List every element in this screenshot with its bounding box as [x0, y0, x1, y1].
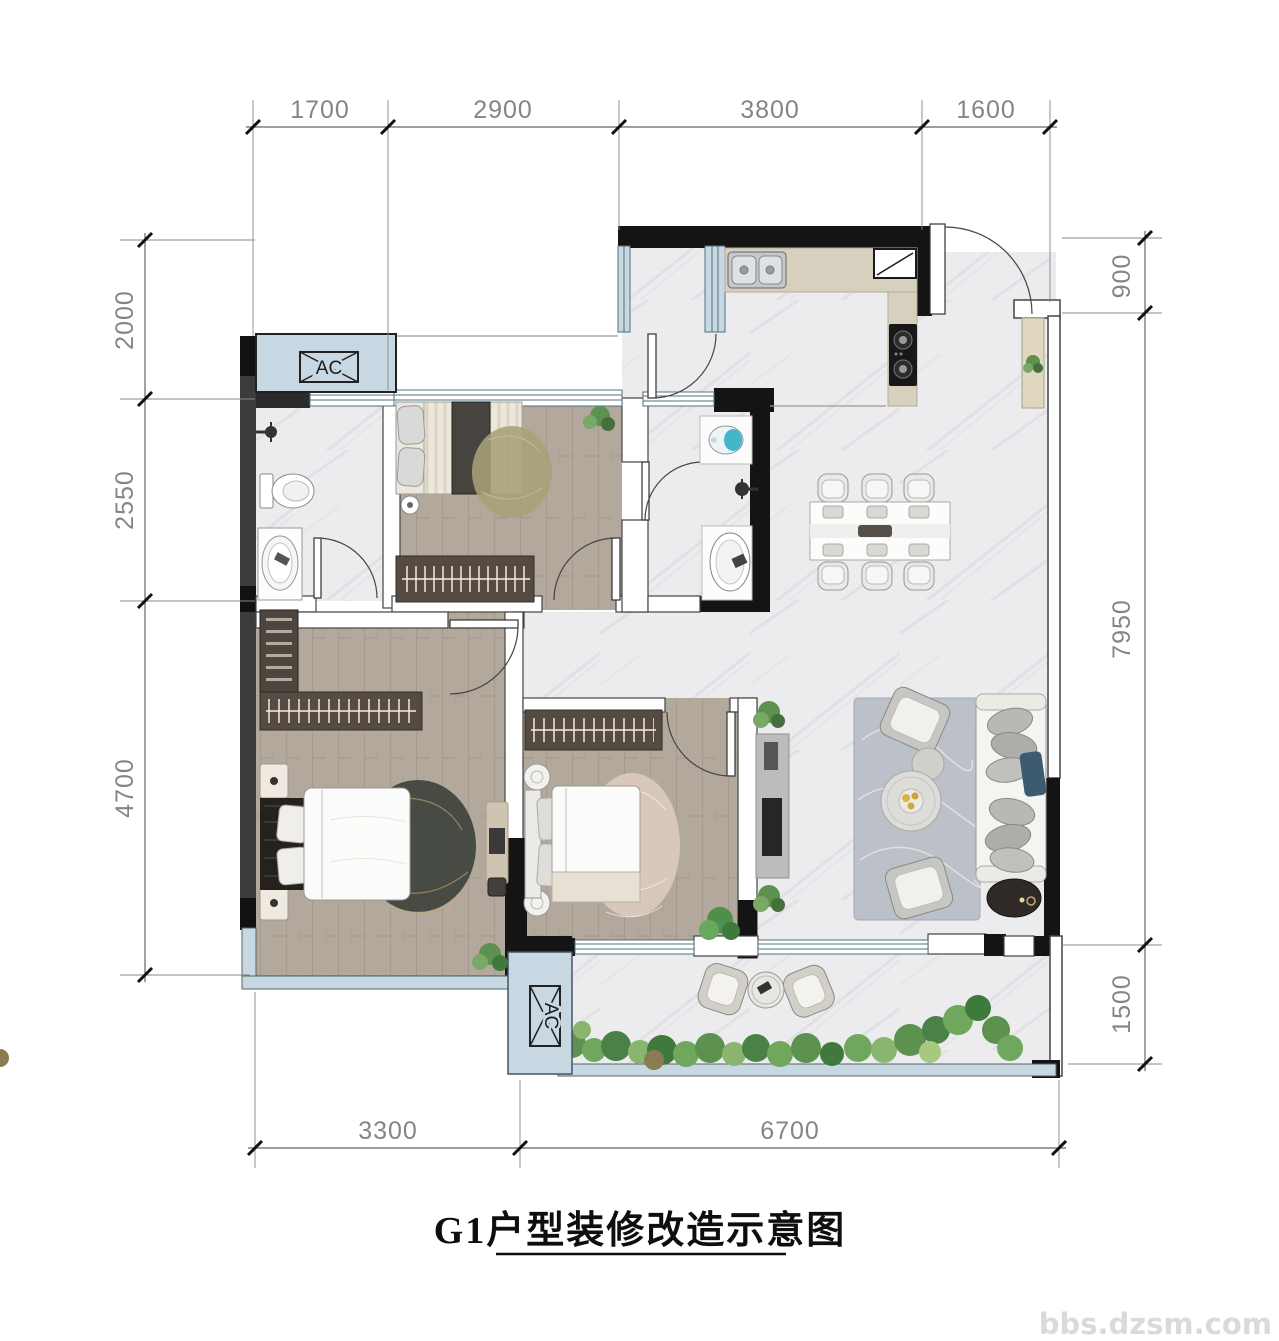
ac-unit-top: AC	[256, 334, 396, 392]
midbed-side-table-top	[524, 764, 550, 790]
dim-bottom-1: 3300	[358, 1117, 418, 1145]
left-wall-accent-3	[240, 898, 256, 930]
kitchen-top-wall	[618, 226, 932, 248]
bath2-bottom-white	[648, 596, 700, 612]
floor-plan-page: AC AC 1700 2900	[0, 0, 1279, 1341]
bath2-toilet	[700, 416, 752, 464]
master-wardrobe	[260, 692, 422, 730]
balcony-window-left	[575, 940, 694, 954]
dim-right-2: 7950	[1108, 599, 1136, 659]
ac-label-balcony: AC	[540, 1003, 561, 1029]
dim-top-1: 1700	[290, 96, 350, 124]
dining-area	[810, 474, 950, 590]
balcony-window-right	[758, 940, 928, 954]
left-wall	[240, 336, 256, 930]
right-wall	[1048, 316, 1060, 778]
balcony-post-black	[984, 934, 1006, 956]
ac-label-top: AC	[316, 358, 342, 379]
dim-left-3: 4700	[111, 758, 139, 818]
master-bed	[260, 788, 410, 900]
bedroom2-floor-lamp	[401, 496, 419, 514]
dim-top-2: 2900	[473, 96, 533, 124]
dining-table	[810, 502, 950, 560]
bedroom2-bath2-wall-lower	[622, 520, 648, 612]
balcony-right-wall	[1050, 936, 1062, 1076]
kitchen-glass-partition	[705, 246, 725, 332]
midbed-bed	[525, 786, 640, 902]
dim-top-4: 1600	[956, 96, 1016, 124]
floor-plan-svg: AC AC 1700 2900	[0, 0, 1279, 1341]
master-nightstand-top	[260, 764, 288, 798]
dim-top-3: 3800	[740, 96, 800, 124]
balcony-glass-rail	[558, 1064, 1056, 1076]
dim-bottom-2: 6700	[760, 1117, 820, 1145]
bath2-right-wall	[750, 404, 770, 612]
left-wall-accent-2	[240, 586, 256, 612]
dining-chairs-bottom	[818, 562, 934, 590]
ac-unit-balcony: AC	[508, 952, 572, 1074]
kitchen-sink	[728, 252, 786, 288]
bath2-sink	[702, 526, 752, 600]
bedroom2-wardrobe	[396, 556, 534, 602]
master-nightstand-bottom	[260, 886, 288, 920]
master-stool	[488, 878, 506, 896]
kitchen-window-appliance	[874, 249, 916, 278]
kitchen-left-window	[618, 246, 630, 332]
tv	[762, 798, 782, 856]
living-bottom-wall	[1004, 936, 1034, 956]
sofa	[976, 694, 1047, 882]
dim-left-2: 2550	[111, 470, 139, 530]
dim-right-1: 900	[1108, 254, 1136, 299]
master-bench-item	[489, 828, 505, 854]
master-tall-wardrobe	[260, 610, 298, 692]
balcony-post-2	[928, 934, 986, 954]
dim-left-1: 2000	[111, 290, 139, 350]
pet-bed	[987, 879, 1041, 917]
bay-window-bottom	[242, 976, 512, 989]
coffee-table	[881, 771, 941, 831]
balcony-post-1	[694, 936, 758, 956]
balcony-table	[748, 972, 784, 1008]
dim-right-3: 1500	[1108, 974, 1136, 1034]
table-centerpiece	[858, 525, 892, 537]
watermark: bbs.dzsm.com	[1039, 1307, 1272, 1341]
bedroom2-bath2-wall-upper	[622, 398, 648, 462]
plan-title: G1户型装修改造示意图	[434, 1210, 847, 1252]
entry	[1022, 318, 1044, 408]
hallway-floor	[523, 612, 763, 700]
midbed-wardrobe	[525, 710, 662, 750]
left-wall-accent-1	[240, 336, 256, 376]
media-device	[764, 742, 778, 770]
bath1-sink	[258, 528, 302, 600]
kitchen-stove	[889, 324, 917, 386]
bedroom2-rug	[472, 426, 552, 518]
bath1-toilet	[260, 474, 314, 508]
dining-chairs-top	[818, 474, 934, 502]
